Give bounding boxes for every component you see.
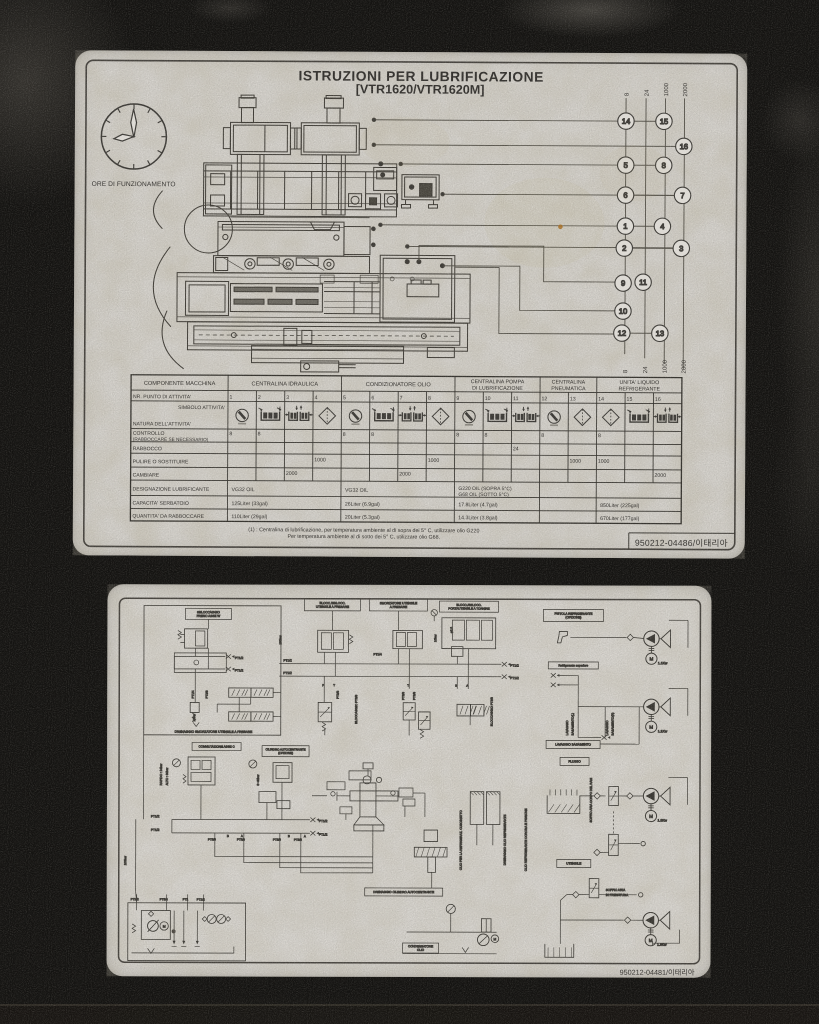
svg-text:NATURA DELL'ATTIVITA': NATURA DELL'ATTIVITA' (133, 421, 191, 427)
svg-text:26Liter (6.9gal): 26Liter (6.9gal) (345, 502, 380, 508)
svg-text:φ2.0: φ2.0 (449, 627, 453, 633)
svg-text:ALTO : 60bar: ALTO : 60bar (165, 768, 169, 786)
svg-text:110Liter (29gal): 110Liter (29gal) (231, 514, 267, 520)
svg-text:SIMBOLO ATTIVITA': SIMBOLO ATTIVITA' (178, 405, 225, 411)
svg-text:125Liter (33gal): 125Liter (33gal) (231, 501, 268, 507)
svg-text:PT3/8: PT3/8 (208, 837, 216, 841)
svg-text:9: 9 (456, 396, 459, 402)
svg-text:4: 4 (660, 222, 664, 231)
svg-text:PT1/2: PT1/2 (131, 897, 139, 901)
svg-text:[VTR1620/VTR1620M]: [VTR1620/VTR1620M] (356, 82, 485, 97)
svg-text:CENTRALINA: CENTRALINA (552, 380, 586, 386)
svg-text:11: 11 (513, 396, 519, 402)
svg-text:UTENSILE: UTENSILE (566, 862, 581, 866)
svg-text:A FRESARE: A FRESARE (390, 605, 407, 609)
svg-text:G68 OIL (SOTTO 5°C): G68 OIL (SOTTO 5°C) (458, 492, 509, 498)
svg-text:B: B (455, 684, 457, 688)
svg-text:OLIO REFRIGERANTE CORONA E PIG: OLIO REFRIGERANTE CORONA E PIGNONE (524, 808, 528, 871)
svg-text:16: 16 (655, 397, 661, 403)
svg-text:3: 3 (679, 244, 683, 253)
svg-text:7: 7 (400, 396, 403, 402)
svg-text:B: B (227, 834, 229, 838)
svg-text:A: A (466, 684, 468, 688)
svg-text:1000: 1000 (314, 457, 326, 463)
svg-text:1: 1 (229, 395, 232, 401)
svg-text:PT1/2: PT1/2 (510, 676, 519, 680)
svg-text:SOFFIO ARIA CORPO DEL RAM: SOFFIO ARIA CORPO DEL RAM (589, 777, 593, 822)
svg-text:OLIO: OLIO (417, 948, 425, 952)
svg-text:Per temperatura ambiente al di: Per temperatura ambiente al di sotto dei… (287, 534, 440, 541)
svg-text:8: 8 (456, 432, 459, 438)
svg-text:12: 12 (541, 396, 547, 402)
svg-text:PT1/2: PT1/2 (510, 664, 519, 668)
svg-text:1000: 1000 (598, 459, 610, 465)
svg-text:RAPIDO : 24bar: RAPIDO : 24bar (159, 764, 163, 786)
svg-text:100bar: 100bar (278, 635, 282, 644)
svg-text:24: 24 (513, 446, 519, 452)
svg-text:2000: 2000 (286, 471, 298, 477)
svg-text:10: 10 (485, 396, 491, 402)
svg-text:1000: 1000 (570, 459, 582, 465)
svg-text:NR. PUNTO DI ATTIVITA': NR. PUNTO DI ATTIVITA' (133, 394, 191, 400)
svg-text:PT1/2: PT1/2 (283, 658, 292, 662)
svg-text:PT3/8: PT3/8 (237, 838, 245, 842)
svg-text:PT1/4: PT1/4 (373, 652, 382, 656)
svg-text:PT3/8: PT3/8 (273, 838, 281, 842)
svg-text:M: M (649, 938, 653, 943)
svg-text:FLUSSO: FLUSSO (568, 760, 581, 764)
svg-text:PT3/8: PT3/8 (205, 690, 209, 698)
svg-text:PT1/2: PT1/2 (235, 669, 244, 673)
svg-text:8: 8 (428, 396, 431, 402)
svg-text:VG32 OIL: VG32 OIL (345, 488, 368, 494)
svg-text:15: 15 (627, 397, 633, 403)
svg-text:T: T (407, 683, 409, 687)
svg-text:PT1/2: PT1/2 (151, 828, 160, 832)
svg-text:DI LUBRIFICAZIONE: DI LUBRIFICAZIONE (472, 386, 523, 392)
svg-text:PORTAUTENSILE A TORNIRE: PORTAUTENSILE A TORNIRE (448, 607, 489, 611)
svg-text:PT3/8: PT3/8 (294, 838, 302, 842)
svg-text:DESIGNAZIONE LUBRIFICANTE: DESIGNAZIONE LUBRIFICANTE (133, 487, 210, 493)
svg-text:CENTRALINA IDRAULICA: CENTRALINA IDRAULICA (252, 381, 319, 387)
svg-text:PT1/2: PT1/2 (319, 819, 328, 823)
svg-text:2: 2 (258, 395, 261, 401)
svg-text:COMMUTAZIONE ASSE C: COMMUTAZIONE ASSE C (199, 745, 236, 749)
svg-text:670Liter (177gal): 670Liter (177gal) (600, 516, 640, 522)
svg-text:PT1/2: PT1/2 (151, 814, 160, 818)
svg-text:PT1/2: PT1/2 (283, 671, 292, 675)
svg-text:LAVAGGIO BASAMENTO: LAVAGGIO BASAMENTO (555, 742, 591, 746)
svg-text:RABBOCCO: RABBOCCO (133, 446, 162, 452)
svg-text:PT1/2: PT1/2 (319, 833, 328, 837)
svg-text:10bar: 10bar (433, 634, 437, 642)
svg-text:A: A (304, 834, 306, 838)
svg-text:REFRIGERANTE: REFRIGERANTE (619, 386, 661, 392)
svg-text:CENTRALINA POMPA: CENTRALINA POMPA (471, 379, 525, 385)
svg-text:12: 12 (618, 329, 627, 338)
svg-text:VG32 OIL: VG32 OIL (232, 487, 255, 493)
svg-text:BLOCCAGGIO PT3/8: BLOCCAGGIO PT3/8 (354, 695, 358, 724)
svg-text:T: T (333, 683, 335, 687)
svg-text:2000: 2000 (682, 359, 688, 373)
svg-text:950212-04486/이태리아: 950212-04486/이태리아 (635, 538, 728, 548)
svg-text:DRENAGGIO SMORZATORE UTENSILE: DRENAGGIO SMORZATORE UTENSILE A FRESARE (175, 730, 253, 734)
svg-text:UTENSILE A FRESARE: UTENSILE A FRESARE (316, 605, 349, 609)
svg-text:PULIRE O SOSTITUIRE: PULIRE O SOSTITUIRE (133, 459, 189, 465)
svg-text:1.1Kw: 1.1Kw (658, 661, 668, 665)
svg-text:2000: 2000 (655, 473, 667, 479)
svg-text:100bar: 100bar (123, 856, 127, 865)
svg-text:14: 14 (622, 117, 631, 126)
svg-text:16: 16 (680, 142, 689, 151)
svg-text:13: 13 (656, 329, 665, 338)
svg-text:M: M (649, 657, 653, 662)
svg-text:LAVAGGIO: LAVAGGIO (605, 720, 609, 736)
svg-text:4: 4 (315, 395, 318, 401)
svg-text:QUANTITA' DA RABBOCCARE: QUANTITA' DA RABBOCCARE (132, 514, 204, 520)
svg-text:DRENAGGIO CILINDRO AUTOCENTRAN: DRENAGGIO CILINDRO AUTOCENTRANTE (373, 890, 434, 894)
svg-text:M: M (494, 937, 497, 941)
svg-text:8: 8 (371, 432, 374, 438)
svg-text:1: 1 (623, 222, 627, 231)
svg-text:8: 8 (343, 432, 346, 438)
svg-text:CONDIZIONATORE OLIO: CONDIZIONATORE OLIO (366, 382, 432, 388)
svg-text:M: M (649, 725, 653, 730)
svg-text:(OPZIONE): (OPZIONE) (565, 615, 581, 619)
svg-text:OLIO PER LA REFRIGERAZ. CUSCIN: OLIO PER LA REFRIGERAZ. CUSCINETTO (459, 810, 463, 870)
svg-text:9: 9 (621, 279, 625, 288)
svg-text:15: 15 (660, 117, 669, 126)
svg-text:PNEUMATICA: PNEUMATICA (551, 386, 586, 392)
svg-text:6~40bar: 6~40bar (256, 775, 260, 786)
svg-text:3: 3 (286, 395, 289, 401)
svg-text:M: M (163, 924, 166, 928)
svg-text:PT1/2: PT1/2 (235, 656, 244, 660)
svg-text:COMPONENTE MACCHINA: COMPONENTE MACCHINA (144, 381, 216, 387)
svg-text:2: 2 (622, 244, 626, 253)
svg-text:LAVAGGIO: LAVAGGIO (565, 720, 569, 736)
svg-text:(RABBOCCARE SE NECESSARIO): (RABBOCCARE SE NECESSARIO) (133, 437, 209, 442)
svg-text:2000: 2000 (399, 471, 411, 477)
svg-text:BASAMENTO(R): BASAMENTO(R) (611, 713, 615, 736)
svg-text:1.8Kw: 1.8Kw (657, 819, 667, 823)
svg-text:8: 8 (598, 433, 601, 439)
svg-text:11: 11 (639, 278, 647, 287)
svg-text:14: 14 (598, 397, 604, 403)
svg-text:2000: 2000 (683, 82, 689, 96)
svg-text:17.8Liter (4.7gal): 17.8Liter (4.7gal) (458, 502, 498, 508)
svg-text:8: 8 (258, 431, 261, 437)
svg-text:8: 8 (541, 433, 544, 439)
svg-text:10: 10 (619, 307, 628, 316)
svg-text:5: 5 (343, 395, 346, 401)
svg-text:1000: 1000 (663, 359, 669, 373)
svg-text:ORE DI FUNZIONAMENTO: ORE DI FUNZIONAMENTO (92, 181, 176, 188)
svg-text:13: 13 (570, 396, 576, 402)
svg-text:1000: 1000 (428, 458, 440, 464)
svg-text:7: 7 (680, 191, 684, 200)
svg-text:850Liter (225gal): 850Liter (225gal) (600, 503, 640, 509)
svg-text:950212-04481/이태리아: 950212-04481/이태리아 (620, 968, 695, 977)
svg-text:1000: 1000 (664, 82, 670, 96)
svg-text:14.3Liter (3.8gal): 14.3Liter (3.8gal) (458, 515, 498, 521)
svg-text:PT1/4: PT1/4 (191, 690, 195, 698)
svg-text:SOFFIO ARIA: SOFFIO ARIA (606, 888, 626, 892)
svg-text:A: A (241, 834, 243, 838)
svg-text:UNITA' LIQUIDO: UNITA' LIQUIDO (619, 380, 659, 386)
svg-text:P: P (322, 683, 324, 687)
svg-text:Refrigerante superiore: Refrigerante superiore (558, 663, 588, 667)
svg-text:CAPACITA' SERBATOIO: CAPACITA' SERBATOIO (132, 501, 188, 507)
svg-text:M: M (649, 814, 653, 819)
svg-text:FRENO ASSE W: FRENO ASSE W (197, 614, 221, 618)
svg-text:PT3/8: PT3/8 (412, 692, 416, 700)
svg-text:6: 6 (371, 395, 374, 401)
svg-text:PT3/8: PT3/8 (401, 692, 405, 700)
svg-text:BLOCCAGGIO PT3/8: BLOCCAGGIO PT3/8 (490, 697, 494, 726)
svg-text:B: B (288, 834, 290, 838)
svg-text:24: 24 (645, 89, 651, 96)
svg-text:24: 24 (643, 366, 649, 373)
svg-text:CAMBIARE: CAMBIARE (133, 473, 160, 479)
svg-text:8: 8 (229, 431, 232, 437)
svg-text:DRENAGGIO OLIO REFRIGERANTE: DRENAGGIO OLIO REFRIGERANTE (503, 815, 507, 866)
svg-text:20Liter (5.3gal): 20Liter (5.3gal) (345, 515, 380, 521)
svg-text:(OPZIONE): (OPZIONE) (278, 751, 293, 755)
svg-text:8: 8 (485, 433, 488, 439)
svg-text:BASAMENTO(L): BASAMENTO(L) (571, 713, 575, 735)
svg-text:1.1Kw: 1.1Kw (658, 729, 668, 733)
svg-text:PT3/8: PT3/8 (336, 690, 340, 698)
